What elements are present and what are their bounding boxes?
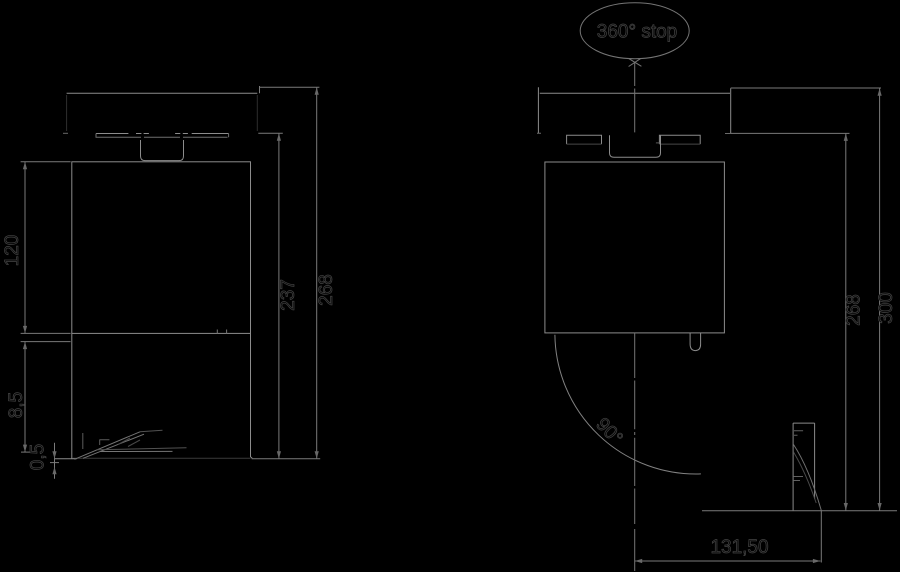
svg-text:268: 268: [316, 274, 337, 306]
svg-text:131,50: 131,50: [710, 537, 768, 558]
svg-text:237: 237: [278, 279, 299, 311]
svg-text:120: 120: [2, 235, 23, 267]
svg-text:8,5: 8,5: [6, 392, 27, 418]
svg-text:300: 300: [876, 292, 897, 324]
svg-text:268: 268: [844, 294, 865, 326]
svg-text:360° stop: 360° stop: [597, 22, 678, 43]
svg-text:0,5: 0,5: [28, 444, 49, 470]
